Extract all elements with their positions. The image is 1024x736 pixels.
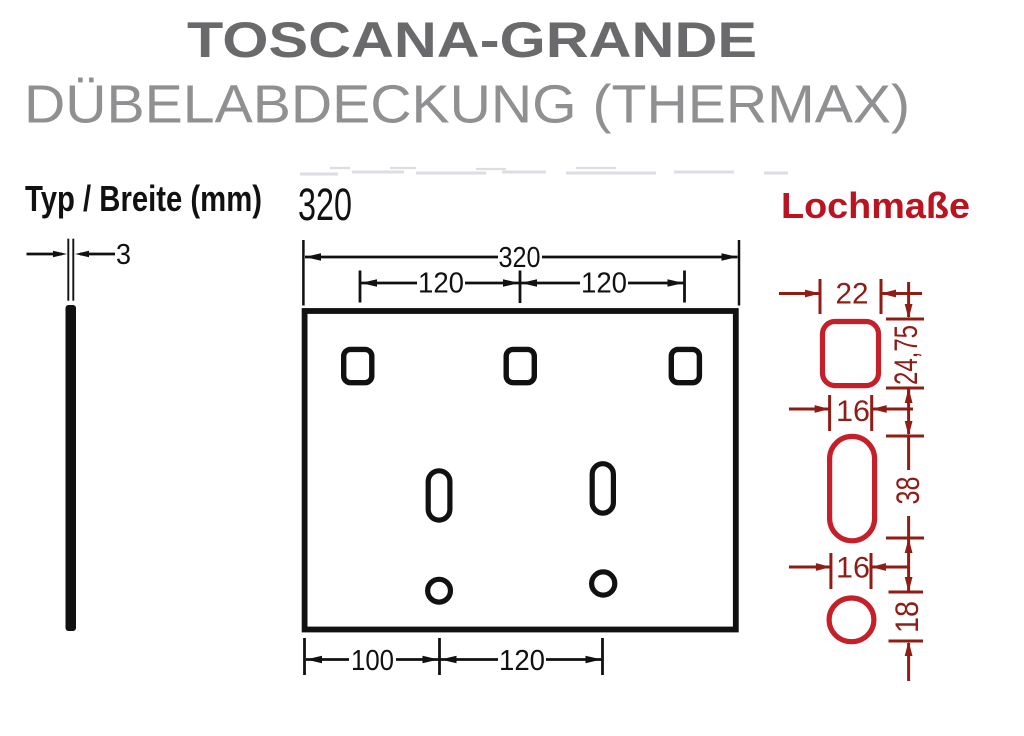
svg-text:120: 120: [418, 268, 464, 300]
svg-text:38: 38: [890, 477, 926, 505]
svg-text:320: 320: [298, 179, 352, 230]
svg-text:Lochmaße: Lochmaße: [781, 185, 970, 226]
svg-text:120: 120: [499, 645, 545, 677]
svg-text:24,75: 24,75: [888, 325, 924, 385]
svg-text:18: 18: [889, 601, 925, 633]
svg-text:16: 16: [836, 395, 870, 428]
svg-text:100: 100: [351, 645, 394, 677]
svg-text:16: 16: [836, 552, 870, 585]
svg-text:3: 3: [116, 239, 131, 271]
svg-text:22: 22: [836, 278, 869, 311]
svg-text:120: 120: [581, 268, 627, 300]
svg-text:TOSCANA-GRANDE: TOSCANA-GRANDE: [187, 12, 757, 68]
svg-text:Typ / Breite (mm): Typ / Breite (mm): [25, 178, 262, 219]
svg-text:DÜBELABDECKUNG (THERMAX): DÜBELABDECKUNG (THERMAX): [24, 75, 910, 135]
svg-text:320: 320: [499, 242, 541, 274]
